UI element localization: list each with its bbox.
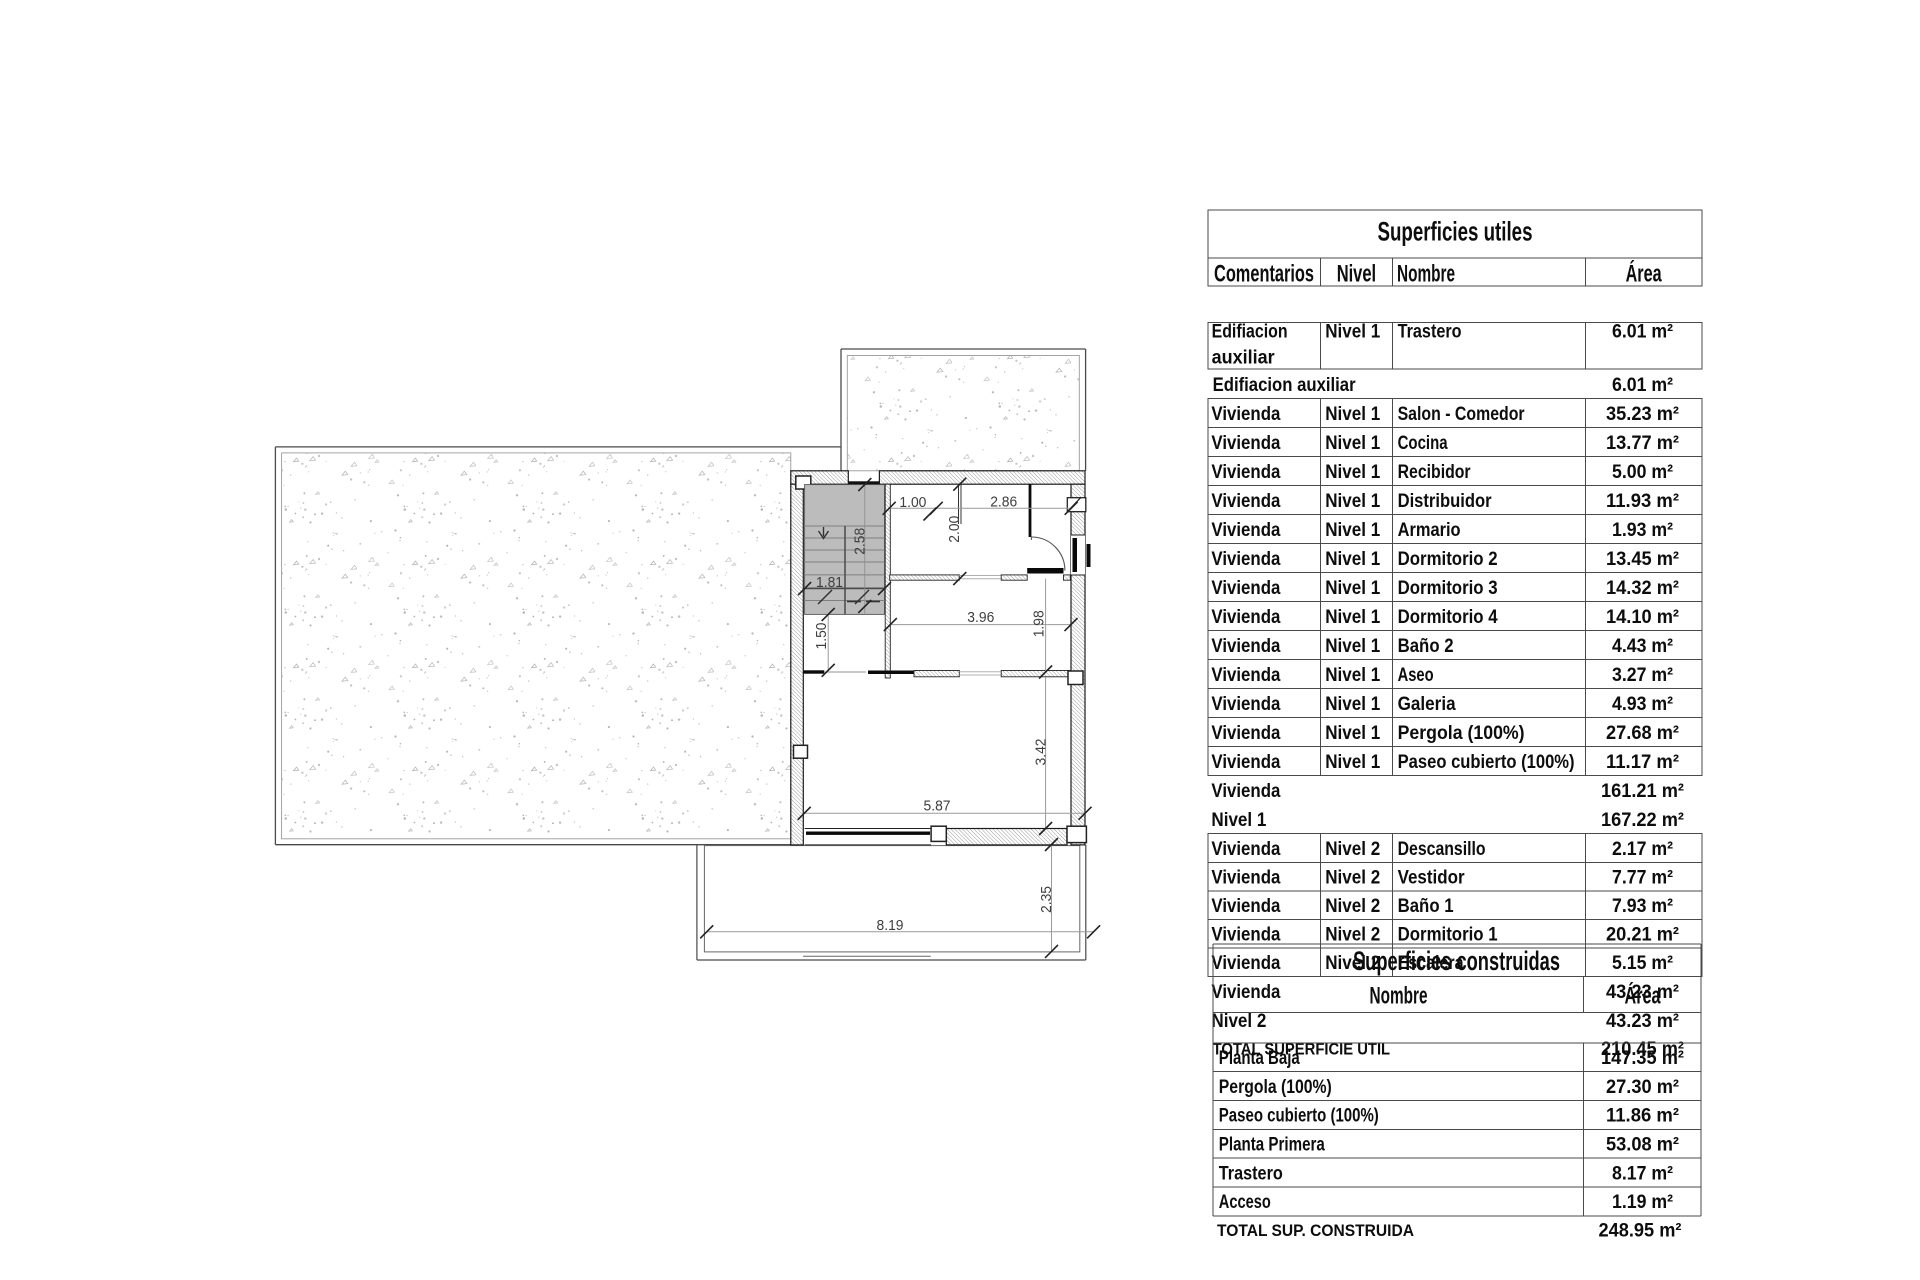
svg-text:Pergola (100%): Pergola (100%)	[1219, 1077, 1332, 1098]
svg-text:Nivel 1: Nivel 1	[1211, 810, 1266, 831]
svg-text:5.15 m²: 5.15 m²	[1612, 953, 1673, 974]
svg-text:Vivienda: Vivienda	[1211, 578, 1280, 599]
svg-text:53.08 m²: 53.08 m²	[1606, 1135, 1679, 1156]
svg-text:5.87: 5.87	[924, 798, 951, 815]
svg-text:Vivienda: Vivienda	[1211, 839, 1280, 860]
svg-text:Nivel: Nivel	[1337, 261, 1376, 288]
svg-text:Aseo: Aseo	[1398, 665, 1434, 686]
svg-text:Nivel 2: Nivel 2	[1325, 867, 1380, 888]
svg-text:Dormitorio 3: Dormitorio 3	[1398, 578, 1498, 599]
svg-text:248.95 m²: 248.95 m²	[1599, 1220, 1682, 1241]
svg-text:Vivienda: Vivienda	[1211, 549, 1280, 570]
svg-text:Vivienda: Vivienda	[1211, 723, 1280, 744]
svg-text:Trastero: Trastero	[1398, 322, 1462, 343]
svg-text:2.86: 2.86	[990, 493, 1017, 510]
svg-text:43.23 m²: 43.23 m²	[1606, 1011, 1679, 1032]
svg-text:Superficies utiles: Superficies utiles	[1378, 217, 1533, 247]
svg-text:Paseo cubierto (100%): Paseo cubierto (100%)	[1398, 752, 1575, 773]
svg-text:Distribuidor: Distribuidor	[1398, 491, 1493, 512]
svg-text:13.77 m²: 13.77 m²	[1606, 433, 1679, 454]
svg-text:Nivel 1: Nivel 1	[1325, 549, 1380, 570]
svg-text:1.81: 1.81	[816, 574, 843, 591]
svg-text:TOTAL SUP. CONSTRUIDA: TOTAL SUP. CONSTRUIDA	[1217, 1222, 1414, 1240]
svg-text:1.50: 1.50	[813, 623, 830, 650]
svg-text:4.93 m²: 4.93 m²	[1612, 694, 1673, 715]
svg-text:Vestidor: Vestidor	[1398, 867, 1466, 888]
svg-text:Vivienda: Vivienda	[1211, 607, 1280, 628]
svg-text:Área: Área	[1626, 260, 1662, 288]
svg-text:Vivienda: Vivienda	[1211, 433, 1280, 454]
svg-text:1.93 m²: 1.93 m²	[1612, 520, 1673, 541]
svg-text:Vivienda: Vivienda	[1211, 781, 1280, 802]
svg-text:1.98: 1.98	[1031, 610, 1048, 637]
svg-text:6.01 m²: 6.01 m²	[1612, 375, 1673, 396]
svg-text:Dormitorio 1: Dormitorio 1	[1398, 925, 1498, 946]
svg-text:2.58: 2.58	[851, 528, 868, 555]
svg-text:Planta Primera: Planta Primera	[1219, 1135, 1325, 1156]
svg-text:Cocina: Cocina	[1398, 433, 1448, 454]
svg-text:35.23 m²: 35.23 m²	[1606, 404, 1679, 425]
svg-text:Pergola (100%): Pergola (100%)	[1398, 723, 1525, 744]
svg-text:13.45 m²: 13.45 m²	[1606, 549, 1679, 570]
svg-text:Baño 1: Baño 1	[1398, 896, 1454, 917]
svg-text:Nivel 1: Nivel 1	[1325, 694, 1380, 715]
svg-text:Vivienda: Vivienda	[1211, 462, 1280, 483]
svg-text:Vivienda: Vivienda	[1211, 404, 1280, 425]
svg-text:Dormitorio 2: Dormitorio 2	[1398, 549, 1498, 570]
svg-text:Paseo cubierto (100%): Paseo cubierto (100%)	[1219, 1106, 1379, 1127]
svg-text:167.22 m²: 167.22 m²	[1601, 810, 1684, 831]
svg-text:Armario: Armario	[1398, 520, 1461, 541]
svg-text:Nivel 1: Nivel 1	[1325, 491, 1380, 512]
svg-text:Trastero: Trastero	[1219, 1163, 1283, 1184]
svg-text:Superficies construidas: Superficies construidas	[1353, 946, 1560, 976]
svg-text:Nombre: Nombre	[1397, 261, 1455, 288]
svg-text:Área: Área	[1625, 981, 1661, 1009]
svg-text:Comentarios: Comentarios	[1214, 261, 1314, 288]
svg-text:161.21 m²: 161.21 m²	[1601, 781, 1684, 802]
svg-text:Nivel 1: Nivel 1	[1325, 404, 1380, 425]
svg-text:1.19 m²: 1.19 m²	[1612, 1192, 1673, 1213]
svg-text:Nivel 1: Nivel 1	[1325, 520, 1380, 541]
svg-text:Vivienda: Vivienda	[1211, 896, 1280, 917]
svg-text:7.93 m²: 7.93 m²	[1612, 896, 1673, 917]
svg-text:27.30 m²: 27.30 m²	[1606, 1077, 1679, 1098]
svg-text:Vivienda: Vivienda	[1211, 520, 1280, 541]
svg-text:Nivel 1: Nivel 1	[1325, 578, 1380, 599]
svg-text:Nombre: Nombre	[1370, 982, 1428, 1009]
svg-text:Nivel 2: Nivel 2	[1325, 839, 1380, 860]
svg-text:Nivel 1: Nivel 1	[1325, 433, 1380, 454]
svg-text:Vivienda: Vivienda	[1211, 982, 1280, 1003]
svg-text:8.19: 8.19	[877, 917, 904, 934]
svg-text:Nivel 1: Nivel 1	[1325, 462, 1380, 483]
svg-text:Salon - Comedor: Salon - Comedor	[1398, 404, 1526, 425]
svg-text:Nivel 1: Nivel 1	[1325, 752, 1380, 773]
svg-text:Nivel 2: Nivel 2	[1211, 1011, 1266, 1032]
svg-text:Vivienda: Vivienda	[1211, 665, 1280, 686]
svg-text:1.00: 1.00	[899, 494, 926, 511]
svg-text:11.93 m²: 11.93 m²	[1606, 491, 1679, 512]
svg-text:Vivienda: Vivienda	[1211, 636, 1280, 657]
svg-text:Vivienda: Vivienda	[1211, 752, 1280, 773]
svg-text:Planta Baja: Planta Baja	[1219, 1048, 1300, 1069]
svg-text:2.17 m²: 2.17 m²	[1612, 839, 1673, 860]
svg-text:Edifiacion: Edifiacion	[1212, 322, 1288, 343]
svg-text:Nivel 2: Nivel 2	[1325, 896, 1380, 917]
svg-text:6.01 m²: 6.01 m²	[1612, 322, 1673, 343]
svg-text:14.32 m²: 14.32 m²	[1606, 578, 1679, 599]
svg-text:11.86 m²: 11.86 m²	[1606, 1106, 1679, 1127]
svg-text:Nivel 1: Nivel 1	[1325, 636, 1380, 657]
svg-text:2.35: 2.35	[1038, 886, 1055, 913]
svg-text:Edifiacion auxiliar: Edifiacion auxiliar	[1213, 375, 1357, 396]
svg-text:5.00 m²: 5.00 m²	[1612, 462, 1673, 483]
svg-text:Baño 2: Baño 2	[1398, 636, 1454, 657]
svg-text:auxiliar: auxiliar	[1212, 348, 1276, 369]
svg-text:3.27 m²: 3.27 m²	[1612, 665, 1673, 686]
svg-text:Galeria: Galeria	[1398, 694, 1456, 715]
svg-text:Vivienda: Vivienda	[1211, 491, 1280, 512]
svg-text:Nivel 1: Nivel 1	[1325, 665, 1380, 686]
svg-text:Nivel 1: Nivel 1	[1325, 607, 1380, 628]
svg-text:3.42: 3.42	[1032, 739, 1049, 766]
svg-text:11.17 m²: 11.17 m²	[1606, 752, 1679, 773]
svg-text:Nivel 1: Nivel 1	[1325, 723, 1380, 744]
svg-text:Vivienda: Vivienda	[1211, 694, 1280, 715]
svg-text:27.68 m²: 27.68 m²	[1606, 723, 1679, 744]
svg-text:20.21 m²: 20.21 m²	[1606, 925, 1679, 946]
svg-text:Vivienda: Vivienda	[1211, 867, 1280, 888]
svg-text:3.96: 3.96	[967, 609, 994, 626]
svg-text:Acceso: Acceso	[1219, 1192, 1271, 1213]
svg-text:4.43 m²: 4.43 m²	[1612, 636, 1673, 657]
svg-text:Recibidor: Recibidor	[1398, 462, 1472, 483]
svg-text:Nivel 2: Nivel 2	[1325, 925, 1380, 946]
svg-text:Vivienda: Vivienda	[1211, 953, 1280, 974]
svg-text:Dormitorio 4: Dormitorio 4	[1398, 607, 1498, 628]
svg-text:2.00: 2.00	[946, 516, 963, 543]
svg-text:14.10 m²: 14.10 m²	[1606, 607, 1679, 628]
svg-text:Nivel 1: Nivel 1	[1325, 322, 1380, 343]
svg-text:8.17 m²: 8.17 m²	[1612, 1163, 1673, 1184]
svg-text:7.77 m²: 7.77 m²	[1612, 867, 1673, 888]
svg-text:147.35 m²: 147.35 m²	[1601, 1048, 1684, 1069]
svg-text:Vivienda: Vivienda	[1211, 925, 1280, 946]
svg-text:Descansillo: Descansillo	[1398, 839, 1486, 860]
